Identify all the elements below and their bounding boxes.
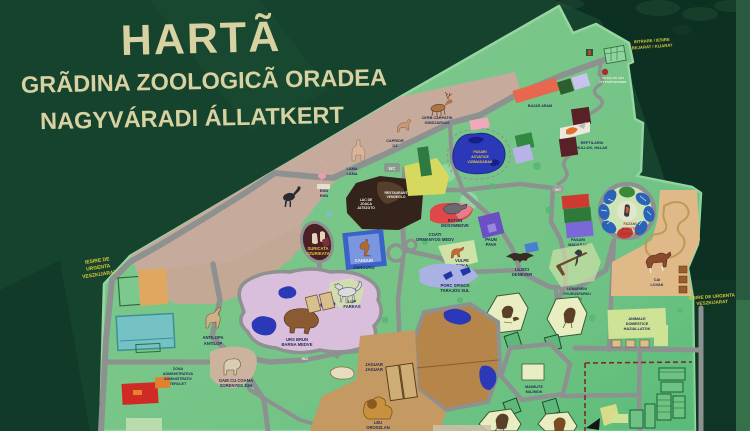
svg-text:OROSZLAN: OROSZLAN (366, 425, 390, 430)
svg-text:VENDEGLO: VENDEGLO (386, 195, 405, 199)
svg-text:WC: WC (302, 356, 309, 361)
svg-text:LAMA: LAMA (347, 167, 358, 171)
svg-text:FARKAS: FARKAS (343, 304, 360, 309)
svg-text:ANIMALE: ANIMALE (628, 317, 646, 321)
svg-text:WC: WC (389, 166, 396, 171)
svg-text:OZ: OZ (392, 144, 398, 148)
svg-text:ADMINISTRATIV: ADMINISTRATIV (164, 377, 192, 381)
svg-text:ACVATICE: ACVATICE (471, 155, 489, 159)
svg-text:GYURUSFARKU: GYURUSFARKU (563, 292, 591, 296)
svg-text:ZONA: ZONA (173, 367, 184, 371)
svg-text:LEMURIENI: LEMURIENI (567, 287, 587, 291)
svg-text:BARNA MEDVE: BARNA MEDVE (281, 342, 312, 347)
svg-text:EMU: EMU (320, 194, 329, 198)
svg-text:EMU: EMU (320, 189, 329, 193)
svg-text:HARTÃ: HARTÃ (120, 13, 282, 65)
svg-text:WC: WC (555, 188, 561, 192)
svg-text:DOMESTICE: DOMESTICE (626, 322, 649, 326)
svg-text:GIMSZARVAS: GIMSZARVAS (425, 121, 450, 125)
svg-text:MAIMUTE: MAIMUTE (525, 385, 543, 389)
svg-text:TARAJOS SUL: TARAJOS SUL (440, 288, 470, 293)
svg-text:LAMA: LAMA (347, 172, 358, 176)
svg-text:ADMINISTRATIVA: ADMINISTRATIVA (163, 372, 194, 376)
svg-text:REPTILARIU: REPTILARIU (581, 141, 604, 145)
svg-text:PASARI: PASARI (473, 150, 486, 154)
svg-text:FACANOK: FACANOK (621, 232, 639, 236)
svg-text:HAZIALLATOK: HAZIALLATOK (624, 327, 651, 331)
svg-text:SZURIKATA: SZURIKATA (306, 251, 330, 256)
svg-text:ITT TARTOZKODIK: ITT TARTOZKODIK (600, 80, 628, 84)
svg-text:JAGUAR: JAGUAR (365, 367, 383, 372)
svg-text:MOSOMEDVE: MOSOMEDVE (441, 223, 469, 228)
svg-text:CANGUR: CANGUR (355, 258, 373, 263)
svg-text:EGZOTIC: EGZOTIC (622, 227, 638, 231)
svg-text:PAVA: PAVA (486, 242, 497, 247)
svg-text:CAI: CAI (654, 278, 661, 282)
svg-text:CAPRIOR: CAPRIOR (386, 139, 404, 143)
svg-text:ORMANYOS MEDV: ORMANYOS MEDV (416, 237, 454, 242)
svg-text:SORENYES JUH: SORENYES JUH (220, 383, 253, 388)
svg-text:FAZANI: FAZANI (624, 222, 637, 226)
svg-text:LOVAK: LOVAK (650, 283, 663, 287)
svg-text:TERULET: TERULET (170, 382, 187, 386)
svg-text:HULLOK, HALAK: HULLOK, HALAK (576, 146, 607, 150)
svg-text:PASARI: PASARI (571, 238, 585, 242)
svg-text:CERB CARPATIN: CERB CARPATIN (422, 116, 453, 120)
svg-text:JATSZOTO: JATSZOTO (357, 206, 375, 210)
svg-text:BAZAR ARAM: BAZAR ARAM (528, 104, 552, 108)
svg-text:KENGURU: KENGURU (353, 265, 374, 270)
svg-text:ANTILOPA: ANTILOPA (202, 335, 223, 340)
svg-text:ANTILOP: ANTILOP (204, 341, 223, 346)
svg-text:VIZIMADARAK: VIZIMADARAK (467, 160, 493, 164)
svg-text:MAJMOK: MAJMOK (526, 390, 543, 394)
svg-text:DENEVER: DENEVER (512, 272, 532, 277)
